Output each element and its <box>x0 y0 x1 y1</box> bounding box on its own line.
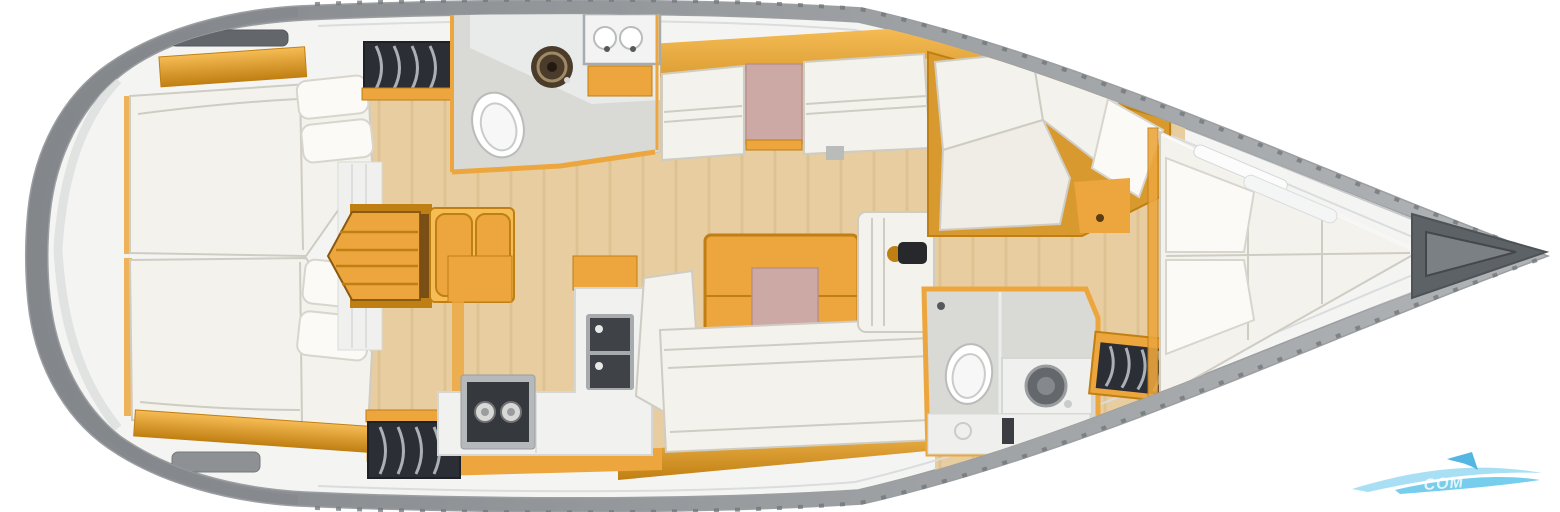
settee-bench-left <box>662 66 744 160</box>
locker-shelf <box>362 88 458 100</box>
counter-return <box>573 256 637 290</box>
shelf-hinge <box>1002 418 1014 444</box>
under-step-locker <box>448 256 512 302</box>
starboard-settee <box>662 54 930 160</box>
hanging-locker-aft-starboard <box>362 42 458 100</box>
settee-latch <box>826 146 844 160</box>
round-washbasin <box>531 46 573 88</box>
washbasin-unit <box>1002 358 1092 414</box>
floor-plan-canvas: COM <box>0 0 1560 512</box>
sofa-bench <box>660 318 935 452</box>
settee-bench-right <box>804 54 930 154</box>
shower-drain <box>937 302 945 310</box>
floor-latch <box>1096 214 1104 222</box>
vanity-sink-unit <box>584 14 660 64</box>
boat-floor-plan: COM <box>0 0 1560 512</box>
vanity-cabinet <box>588 66 652 96</box>
aft-head <box>452 12 660 172</box>
bed-bulkhead-trim <box>1148 128 1158 398</box>
step-gap <box>420 214 430 298</box>
watermark-text: COM <box>1423 474 1464 494</box>
stove <box>461 375 535 449</box>
settee-table <box>746 64 802 150</box>
tv-screen <box>898 242 927 264</box>
seating-floor-wedge <box>1074 178 1130 233</box>
double-sink <box>586 314 634 390</box>
deck-hatch-aft-port <box>172 452 260 472</box>
table-center-pad <box>752 268 818 326</box>
